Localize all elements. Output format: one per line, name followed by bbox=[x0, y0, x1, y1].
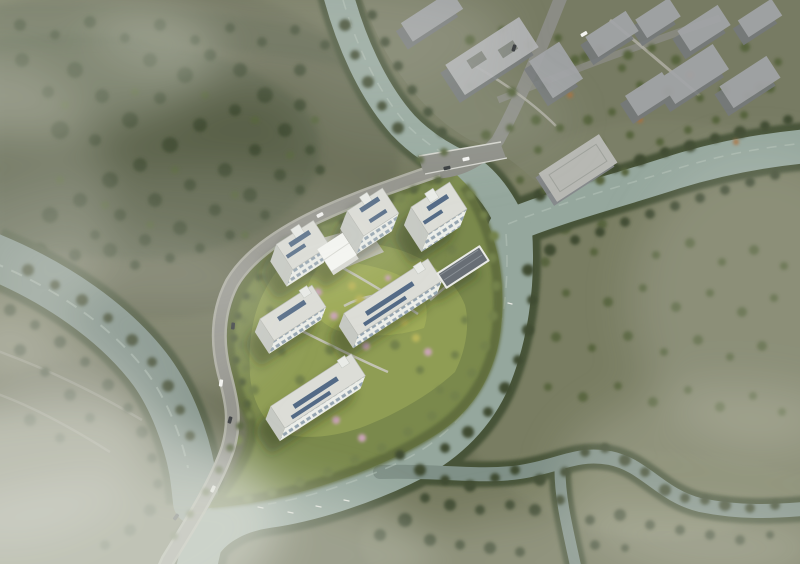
aerial-rendering bbox=[0, 0, 800, 564]
